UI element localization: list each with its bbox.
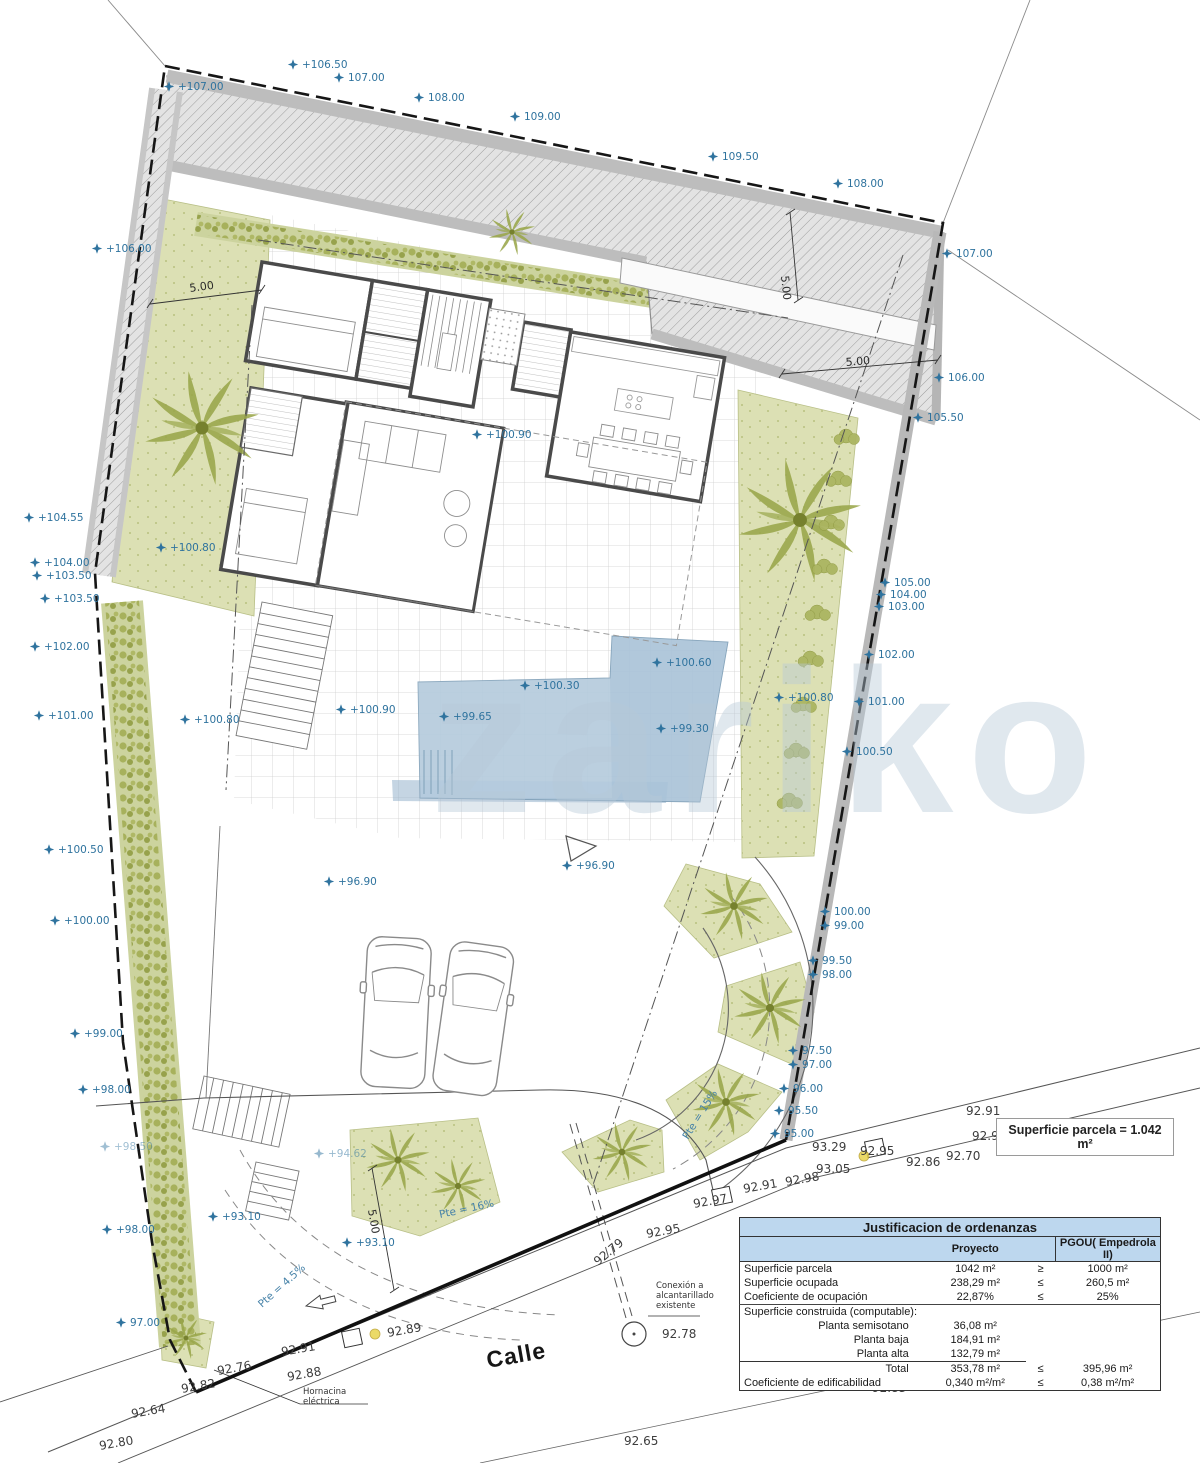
room-bathroom-3 (241, 388, 302, 456)
svg-text:93.05: 93.05 (816, 1162, 850, 1176)
annotation-note: Conexión aalcantarilladoexistente (656, 1280, 714, 1311)
spot-level-label: 92.95 (860, 1144, 894, 1158)
svg-text:100.50: 100.50 (856, 746, 893, 758)
table-row: Superficie parcela1042 m²≥1000 m² (740, 1262, 1161, 1277)
spot-level-label: 93.05 (816, 1162, 850, 1176)
elevation-label: +99.00 (70, 1028, 123, 1040)
svg-text:109.00: 109.00 (524, 111, 561, 123)
table-cell-pgou (1055, 1319, 1160, 1333)
svg-text:101.00: 101.00 (868, 696, 905, 708)
table-cell-val: 36,08 m² (925, 1319, 1026, 1333)
svg-text:+96.90: +96.90 (576, 860, 615, 872)
svg-text:109.50: 109.50 (722, 151, 759, 163)
table-cell-val: 0,340 m²/m² (925, 1376, 1026, 1391)
table-row: Planta baja184,91 m² (740, 1333, 1161, 1347)
svg-text:+94.62: +94.62 (328, 1148, 367, 1160)
elevation-label: +104.55 (24, 512, 84, 524)
svg-text:+99.65: +99.65 (453, 711, 492, 723)
elevation-label: +100.00 (50, 915, 110, 927)
table-cell-lbl: Planta semisotano (740, 1319, 925, 1333)
svg-text:102.00: 102.00 (878, 649, 915, 661)
table-row: Coeficiente de ocupación22,87%≤25% (740, 1290, 1161, 1305)
elevation-label: 108.00 (833, 178, 884, 190)
elevation-label: +106.50 (288, 59, 348, 71)
table-cell-pgou (1055, 1333, 1160, 1347)
table-row: Coeficiente de edificabilidad0,340 m²/m²… (740, 1376, 1161, 1391)
svg-text:+104.55: +104.55 (38, 512, 84, 524)
svg-text:92.80: 92.80 (98, 1433, 134, 1453)
svg-text:103.00: 103.00 (888, 601, 925, 613)
table-cell-cmp: ≥ (1026, 1262, 1055, 1277)
table-cell-pgou: 1000 m² (1055, 1262, 1160, 1277)
elevation-label: +98.00 (78, 1084, 131, 1096)
svg-text:+106.00: +106.00 (106, 243, 152, 255)
table-cell-val: 184,91 m² (925, 1333, 1026, 1347)
svg-text:+103.50: +103.50 (54, 593, 100, 605)
table-cell-cmp: ≤ (1026, 1290, 1055, 1305)
table-row: Superficie ocupada238,29 m²≤260,5 m² (740, 1276, 1161, 1290)
table-cell-cmp (1026, 1347, 1055, 1362)
svg-text:108.00: 108.00 (428, 92, 465, 104)
svg-text:97.00: 97.00 (130, 1317, 160, 1329)
elevation-label: +94.62 (314, 1148, 367, 1160)
table-cell-cmp (1026, 1305, 1055, 1320)
slope-label: Pte = 4.5% (256, 1262, 308, 1310)
table-cell-cmp: ≤ (1026, 1362, 1055, 1377)
table-cell-pgou (1055, 1347, 1160, 1362)
spot-level-label: 92.89 (386, 1320, 422, 1340)
svg-text:92.91: 92.91 (280, 1339, 316, 1359)
table-cell-lbl: Superficie parcela (740, 1262, 925, 1277)
elevation-label: +98.00 (102, 1224, 155, 1236)
svg-text:95.50: 95.50 (788, 1105, 818, 1117)
elevation-label: +100.50 (44, 844, 104, 856)
table-cell-val: 132,79 m² (925, 1347, 1026, 1362)
svg-text:92.95: 92.95 (860, 1144, 894, 1158)
svg-text:+100.80: +100.80 (170, 542, 216, 554)
flow-arrow (304, 1292, 336, 1313)
svg-text:92.76: 92.76 (216, 1358, 252, 1378)
svg-text:92.79: 92.79 (591, 1235, 626, 1268)
svg-text:+98.50: +98.50 (114, 1141, 153, 1153)
table-cell-lbl: Planta alta (740, 1347, 925, 1362)
parcel-area-badge: Superficie parcela = 1.042 m² (996, 1118, 1174, 1156)
svg-text:92.91: 92.91 (966, 1104, 1000, 1118)
watermark: zariko (430, 627, 1106, 856)
svg-text:+100.30: +100.30 (534, 680, 580, 692)
table-cell-pgou: 395,96 m² (1055, 1362, 1160, 1377)
car-2 (426, 939, 520, 1098)
svg-text:+93.10: +93.10 (222, 1211, 261, 1223)
svg-text:+102.00: +102.00 (44, 641, 90, 653)
svg-text:5.00: 5.00 (845, 354, 871, 369)
svg-text:92.95: 92.95 (645, 1221, 681, 1241)
elevation-label: 108.00 (414, 92, 465, 104)
svg-text:106.00: 106.00 (948, 372, 985, 384)
svg-text:99.50: 99.50 (822, 955, 852, 967)
car-1 (355, 936, 437, 1090)
spot-level-label: 92.79 (591, 1235, 626, 1268)
svg-text:+101.00: +101.00 (48, 710, 94, 722)
spot-level-label: 92.91 (280, 1339, 316, 1359)
svg-text:+98.00: +98.00 (92, 1084, 131, 1096)
table-row: Total353,78 m²≤395,96 m² (740, 1362, 1161, 1377)
svg-text:+96.90: +96.90 (338, 876, 377, 888)
svg-text:+100.80: +100.80 (194, 714, 240, 726)
svg-text:+93.10: +93.10 (356, 1237, 395, 1249)
elevation-label: +103.50 (40, 593, 100, 605)
table-cell-lbl: Superficie ocupada (740, 1276, 925, 1290)
svg-text:Pte = 4.5%: Pte = 4.5% (256, 1262, 308, 1310)
svg-text:+98.00: +98.00 (116, 1224, 155, 1236)
svg-text:108.00: 108.00 (847, 178, 884, 190)
room-bedroom-1 (245, 262, 372, 379)
table-row: Planta semisotano36,08 m² (740, 1319, 1161, 1333)
elevation-label: 97.00 (116, 1317, 160, 1329)
table-cell-lbl: Coeficiente de ocupación (740, 1290, 925, 1305)
svg-text:5.00: 5.00 (365, 1208, 382, 1234)
elevation-label: +104.00 (30, 557, 90, 569)
dimension-label: 5.00 (778, 275, 793, 301)
table-cell-pgou: 0,38 m²/m² (1055, 1376, 1160, 1391)
elevation-label: 95.50 (774, 1105, 818, 1117)
table-cell-lbl: Superficie construida (computable): (740, 1305, 925, 1320)
svg-text:99.00: 99.00 (834, 920, 864, 932)
svg-text:+100.00: +100.00 (64, 915, 110, 927)
svg-text:104.00: 104.00 (890, 589, 927, 601)
spot-level-label: 92.97 (692, 1191, 728, 1211)
dimension-label: 5.00 (365, 1208, 382, 1234)
table-cell-cmp (1026, 1319, 1055, 1333)
svg-text:+107.00: +107.00 (178, 81, 224, 93)
svg-text:92.78: 92.78 (662, 1327, 696, 1341)
svg-text:+100.90: +100.90 (486, 429, 532, 441)
svg-text:95.00: 95.00 (784, 1128, 814, 1140)
svg-text:+103.50: +103.50 (46, 570, 92, 582)
elevation-label: +100.80 (180, 714, 240, 726)
table-cell-lbl: Total (740, 1362, 925, 1377)
elevation-label: 96.00 (779, 1083, 823, 1095)
elevation-label: +96.90 (324, 876, 377, 888)
svg-text:92.82: 92.82 (180, 1376, 216, 1396)
svg-text:92.65: 92.65 (624, 1434, 658, 1448)
col-header-pgou: PGOU( Empedrola II) (1055, 1237, 1160, 1262)
elevation-label: +98.50 (100, 1141, 153, 1153)
svg-text:alcantarillado: alcantarillado (656, 1291, 714, 1301)
elevation-label: 107.00 (334, 72, 385, 84)
table-cell-cmp: ≤ (1026, 1376, 1055, 1391)
street-name-label: Calle (484, 1337, 548, 1373)
col-header-proyecto: Proyecto (925, 1237, 1026, 1262)
spot-level-label: 92.76 (216, 1358, 252, 1378)
svg-text:107.00: 107.00 (348, 72, 385, 84)
elevation-label: 109.50 (708, 151, 759, 163)
table-cell-val: 1042 m² (925, 1262, 1026, 1277)
ordinance-table: Justificacion de ordenanzas Proyecto PGO… (739, 1217, 1161, 1391)
exterior-stairs (193, 602, 333, 1220)
svg-text:+99.30: +99.30 (670, 723, 709, 735)
site-plan-page: { "drawing": { "street_label": "Calle", … (0, 0, 1200, 1463)
table-cell-lbl: Coeficiente de edificabilidad (740, 1376, 925, 1391)
svg-text:92.64: 92.64 (130, 1401, 166, 1421)
svg-text:5.00: 5.00 (778, 275, 793, 301)
spot-level-label: 92.86 (906, 1155, 940, 1169)
dimension-label: 5.00 (845, 354, 871, 369)
spot-level-label: 93.29 (812, 1140, 846, 1154)
elevation-label: +106.00 (92, 243, 152, 255)
spot-level-label: 92.70 (946, 1149, 980, 1163)
spot-level-label: 92.78 (662, 1327, 696, 1341)
table-cell-pgou: 260,5 m² (1055, 1276, 1160, 1290)
svg-text:105.50: 105.50 (927, 412, 964, 424)
spot-level-label: 92.91 (966, 1104, 1000, 1118)
svg-text:92.86: 92.86 (906, 1155, 940, 1169)
spot-level-label: 92.80 (98, 1433, 134, 1453)
marker-light (370, 1329, 380, 1339)
parked-cars (355, 936, 520, 1098)
spot-level-label: 92.64 (130, 1401, 166, 1421)
table-cell-val: 238,29 m² (925, 1276, 1026, 1290)
svg-text:eléctrica: eléctrica (303, 1396, 340, 1407)
elevation-label: 109.00 (510, 111, 561, 123)
elevation-label: 107.00 (942, 248, 993, 260)
svg-text:93.29: 93.29 (812, 1140, 846, 1154)
elevation-label: +103.50 (32, 570, 92, 582)
table-cell-val: 22,87% (925, 1290, 1026, 1305)
table-cell-cmp: ≤ (1026, 1276, 1055, 1290)
elevation-label: +102.00 (30, 641, 90, 653)
table-title: Justificacion de ordenanzas (740, 1218, 1161, 1237)
utility-box (342, 1328, 363, 1347)
table-cell-val (925, 1305, 1026, 1320)
svg-text:Hornacina: Hornacina (303, 1387, 346, 1397)
spot-level-label: 92.98 (784, 1169, 820, 1189)
svg-text:96.00: 96.00 (793, 1083, 823, 1095)
svg-text:97.00: 97.00 (802, 1059, 832, 1071)
svg-text:105.00: 105.00 (894, 577, 931, 589)
spot-level-label: 92.65 (624, 1434, 658, 1448)
spot-level-label: 92.95 (645, 1221, 681, 1241)
svg-text:92.97: 92.97 (692, 1191, 728, 1211)
table-cell-pgou: 25% (1055, 1290, 1160, 1305)
svg-text:+106.50: +106.50 (302, 59, 348, 71)
svg-text:98.00: 98.00 (822, 969, 852, 981)
elevation-label: +96.90 (562, 860, 615, 872)
table-row: Superficie construida (computable): (740, 1305, 1161, 1320)
elevation-label: +93.10 (342, 1237, 395, 1249)
svg-text:92.89: 92.89 (386, 1320, 422, 1340)
svg-text:100.00: 100.00 (834, 906, 871, 918)
svg-text:107.00: 107.00 (956, 248, 993, 260)
table-cell-val: 353,78 m² (925, 1362, 1026, 1377)
svg-text:+104.00: +104.00 (44, 557, 90, 569)
elevation-label: +101.00 (34, 710, 94, 722)
svg-text:+100.50: +100.50 (58, 844, 104, 856)
svg-text:Conexión a: Conexión a (656, 1280, 704, 1291)
svg-text:+100.90: +100.90 (350, 704, 396, 716)
svg-text:+99.00: +99.00 (84, 1028, 123, 1040)
table-cell-pgou (1055, 1305, 1160, 1320)
table-row: Planta alta132,79 m² (740, 1347, 1161, 1362)
table-cell-lbl: Planta baja (740, 1333, 925, 1347)
svg-text:92.98: 92.98 (784, 1169, 820, 1189)
spot-level-label: 92.82 (180, 1376, 216, 1396)
svg-text:97.50: 97.50 (802, 1045, 832, 1057)
svg-text:existente: existente (656, 1301, 695, 1311)
table-header-row: Proyecto PGOU( Empedrola II) (740, 1237, 1161, 1262)
svg-text:+100.80: +100.80 (788, 692, 834, 704)
table-cell-cmp (1026, 1333, 1055, 1347)
elevation-label: +93.10 (208, 1211, 261, 1223)
svg-text:+100.60: +100.60 (666, 657, 712, 669)
svg-text:92.70: 92.70 (946, 1149, 980, 1163)
